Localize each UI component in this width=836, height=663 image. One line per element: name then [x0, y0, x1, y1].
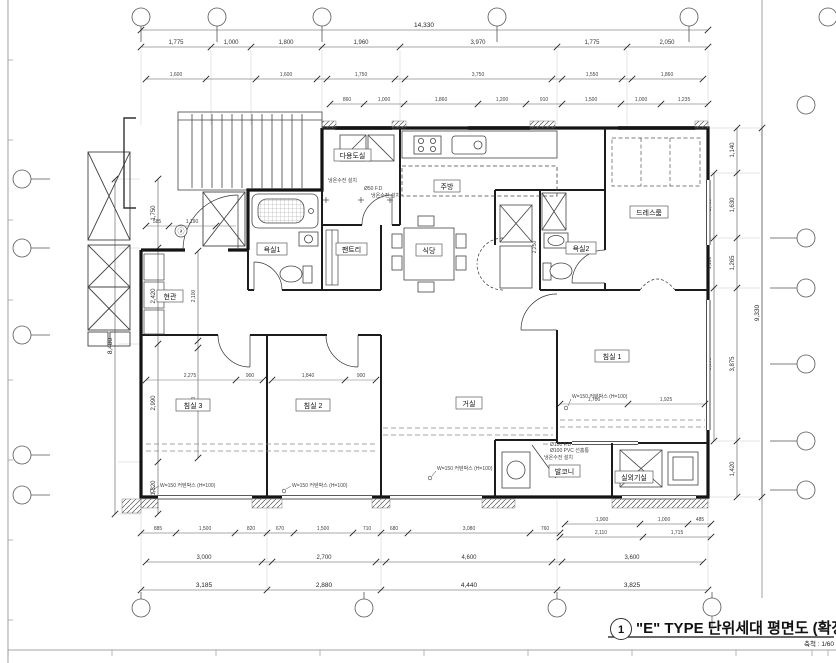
door-arc-utility [362, 195, 392, 225]
dim-top-small-6: 1,000 [635, 97, 648, 103]
dim-bot-small-5: 710 [363, 526, 372, 532]
dim-bot-small-4: 1,500 [317, 526, 330, 532]
dim-int-ent-a: 585 [153, 219, 162, 225]
svg-text:다용도실: 다용도실 [340, 151, 366, 160]
left-ruler-ticks [8, 60, 13, 620]
dim-top-small-0: 860 [343, 97, 352, 103]
room-label-bedroom3: 침실 3 [176, 399, 210, 411]
drawing-title: "E" TYPE 단위세대 평면도 (확장형) [636, 619, 836, 637]
dim-top-main-4: 3,970 [470, 40, 486, 46]
dim-bot-small-7: 3,080 [463, 526, 476, 532]
dim-bot-small-1: 1,500 [199, 526, 212, 532]
dim-int-bed3-w: 2,275 [184, 373, 197, 379]
svg-text:드레스룸: 드레스룸 [636, 208, 662, 217]
dim-chain-bottom: 885 1,500 820 670 1,500 710 680 3,080 76… [138, 517, 714, 593]
dim-top-main-1: 1,000 [223, 40, 239, 46]
svg-text:냉온수전 설치: 냉온수전 설치 [544, 454, 573, 461]
elevator-shaft [203, 192, 245, 246]
dim-int-bed2-w: 1,840 [302, 373, 315, 379]
grid-bubbles-left [13, 170, 50, 504]
dim-top-small-4: 910 [540, 97, 549, 103]
dim-chain-top: 14,330 1,775 1,000 1,800 1,960 3,970 1,7… [138, 22, 711, 107]
svg-text:침실 2: 침실 2 [304, 401, 323, 410]
dim-right-main-1: 1,630 [730, 197, 736, 213]
title-block: 1 "E" TYPE 단위세대 평면도 (확장형) 축척 : 1/60 [608, 616, 836, 648]
room-label-dining: 식당 [416, 244, 442, 256]
svg-text:발코니: 발코니 [555, 467, 574, 476]
dim-top-main-6: 2,050 [659, 40, 675, 46]
dim-bot-small-3: 670 [276, 526, 285, 532]
dim-chain-right: 9,330 1,140 1,630 1,265 3,875 1,420 1,48… [707, 125, 765, 500]
stair-core [178, 112, 322, 190]
grid-bubbles-bottom [132, 592, 721, 617]
dim-top-small-2: 1,860 [435, 97, 448, 103]
svg-text:Ø50 F.D: Ø50 F.D [364, 186, 383, 192]
dim-bot-small-r2-0: 2,110 [595, 530, 607, 536]
furniture-toilet-bath2 [543, 263, 572, 280]
dim-bot-small-0: 885 [154, 526, 163, 532]
dim-bot-mid-1: 2,700 [316, 555, 332, 561]
dim-bot-small-2: 820 [247, 526, 256, 532]
shaft-kitchen [500, 205, 532, 288]
svg-text:W=150 커텐박스 (H=100): W=150 커텐박스 (H=100) [437, 465, 493, 472]
room-labels: 침실 3 침실 2 침실 1 거실 주방 식당 팬트리 다용도실 [157, 149, 668, 483]
svg-text:침실 3: 침실 3 [184, 401, 203, 410]
door-arc-bedroom1 [521, 294, 557, 330]
door-arcs [183, 195, 675, 367]
dim-bot-small-6: 680 [390, 526, 399, 532]
dim-right-main-3: 3,875 [730, 356, 736, 372]
dim-top-small-1: 1,000 [378, 97, 391, 103]
svg-text:현관: 현관 [164, 292, 177, 301]
dim-top-inner-0: 1,600 [170, 72, 183, 78]
room-label-utility: 다용도실 [334, 149, 371, 161]
floorplan-sheet: 14,330 1,775 1,000 1,800 1,960 3,970 1,7… [0, 0, 836, 663]
annotation-curtain-bed3: W=150 커텐박스 (H=100) [150, 482, 215, 493]
dim-top-inner-1: 1,600 [280, 72, 293, 78]
dim-bot-small-r1-0: 1,900 [596, 517, 609, 523]
svg-text:실외기실: 실외기실 [621, 473, 647, 482]
bottom-ruler [8, 650, 828, 656]
dim-top-total: 14,330 [414, 22, 434, 29]
svg-text:W=150 커텐박스 (H=100): W=150 커텐박스 (H=100) [292, 482, 348, 489]
room-label-entrance: 현관 [157, 290, 183, 302]
dim-top-main-0: 1,775 [168, 40, 184, 46]
room-label-dressroom: 드레스룸 [630, 206, 668, 218]
furniture-kitchen-counter [402, 131, 557, 196]
room-label-living: 거실 [456, 397, 482, 409]
dim-top-main-2: 1,800 [278, 40, 294, 46]
grid-bubbles-top [132, 8, 836, 42]
furniture-sink-bath1 [299, 232, 318, 246]
drawing-scale: 축척 : 1/60 [804, 639, 834, 648]
door-arc-bedroom3 [218, 335, 250, 367]
furniture-bathtub [252, 194, 318, 228]
svg-text:거실: 거실 [463, 399, 476, 408]
dim-left-main-2: 2,990 [151, 395, 157, 411]
door-mark-label: ⓐ [178, 228, 185, 236]
dim-bot-small-8: 760 [541, 526, 550, 532]
svg-text:팬트리: 팬트리 [342, 245, 361, 254]
furniture-wardrobe-dress [612, 138, 700, 186]
furniture-pantry-shelves [326, 230, 338, 285]
dim-top-inner-5: 1,860 [661, 72, 674, 78]
entrance-door-mark: ⓐ [175, 225, 187, 237]
dim-bot-small-r2-1: 1,715 [671, 530, 684, 536]
door-arc-dressroom [640, 279, 675, 290]
room-label-bath2: 욕실2 [566, 242, 596, 254]
dim-left-main-1: 2,420 [151, 288, 157, 304]
dim-bot-main-2: 4,440 [461, 582, 478, 589]
furniture-toilet-bath1 [280, 266, 312, 283]
dim-chain-left: 8,480 1,750 2,420 2,990 1,320 2,100 2,80… [107, 176, 201, 517]
dim-bot-small-r1-1: 1,000 [658, 517, 671, 523]
dim-top-inner-3: 3,750 [472, 72, 485, 78]
room-label-bath1: 욕실1 [257, 243, 287, 255]
room-label-balcony: 발코니 [549, 465, 580, 477]
svg-text:Ø100 PVC 선홈통: Ø100 PVC 선홈통 [550, 447, 589, 454]
room-label-bedroom2: 침실 2 [296, 399, 330, 411]
dim-bot-main-0: 3,185 [196, 582, 213, 589]
svg-text:냉온수전 설치: 냉온수전 설치 [328, 177, 357, 184]
dim-bot-mid-2: 4,600 [461, 555, 477, 561]
room-label-bedroom1: 침실 1 [595, 350, 629, 362]
dim-right-main-2: 1,265 [730, 255, 736, 271]
annotation-curtain-living: W=150 커텐박스 (H=100) [428, 465, 492, 480]
room-label-kitchen: 주방 [434, 180, 460, 192]
room-label-machine-room: 실외기실 [615, 471, 653, 483]
dim-bot-main-1: 2,880 [316, 582, 333, 589]
svg-text:W=150 커텐박스 (H=100): W=150 커텐박스 (H=100) [160, 482, 216, 489]
dim-int-bed1-a: 1,700 [588, 397, 601, 403]
svg-text:주방: 주방 [441, 182, 454, 191]
sheet-border [8, 0, 836, 663]
dim-top-small-3: 1,200 [496, 97, 509, 103]
dim-right-main-4: 1,420 [730, 461, 736, 477]
dim-int-bed2-d: 900 [357, 373, 366, 379]
door-arc-bath1 [254, 262, 282, 290]
dim-top-small-7: 1,235 [678, 97, 691, 103]
dim-bot-small-r1-2: 485 [696, 517, 705, 523]
dim-top-inner-2: 1,750 [355, 72, 368, 78]
dim-top-inner-4: 1,550 [586, 72, 599, 78]
dim-top-main-3: 1,960 [353, 40, 369, 46]
grid-bubbles-right [770, 96, 815, 499]
dim-left-inner-0: 2,100 [191, 290, 197, 303]
dim-int-ent-b: 1,190 [186, 219, 199, 225]
dim-right-total: 9,330 [754, 304, 761, 321]
annotation-curtain-bed2: W=150 커텐박스 (H=100) [282, 482, 347, 493]
dim-int-bed1-b: 1,925 [660, 397, 673, 403]
svg-text:냉온수전 설치: 냉온수전 설치 [371, 192, 400, 199]
dim-top-small-5: 1,500 [585, 97, 598, 103]
title-number: 1 [618, 624, 624, 636]
furniture-sink-bath2 [544, 233, 568, 248]
room-label-pantry: 팬트리 [336, 243, 367, 255]
svg-text:욕실2: 욕실2 [573, 244, 590, 253]
dim-top-main-5: 1,775 [584, 40, 600, 46]
dim-int-kit-v: 2,250 [532, 241, 538, 254]
expansion-dashed-lines [146, 420, 705, 451]
annotation-utility-plumbing: 냉온수전 설치 Ø50 F.D 냉온수전 설치 [323, 177, 400, 203]
dim-bot-main-3: 3,825 [624, 582, 641, 589]
svg-text:침실 1: 침실 1 [603, 352, 622, 361]
door-arc-bath2 [572, 250, 605, 283]
dim-right-main-0: 1,140 [730, 142, 736, 158]
svg-text:식당: 식당 [423, 246, 436, 255]
svg-text:욕실1: 욕실1 [264, 245, 281, 254]
dim-bot-mid-0: 3,000 [196, 555, 212, 561]
dim-int-bed3-d: 900 [246, 373, 255, 379]
door-arc-living-double [477, 238, 503, 290]
furniture-balcony-washer [502, 445, 556, 488]
shaft-bath2 [542, 193, 566, 230]
dim-bot-mid-3: 3,600 [624, 555, 640, 561]
door-arc-bedroom2 [326, 335, 358, 367]
